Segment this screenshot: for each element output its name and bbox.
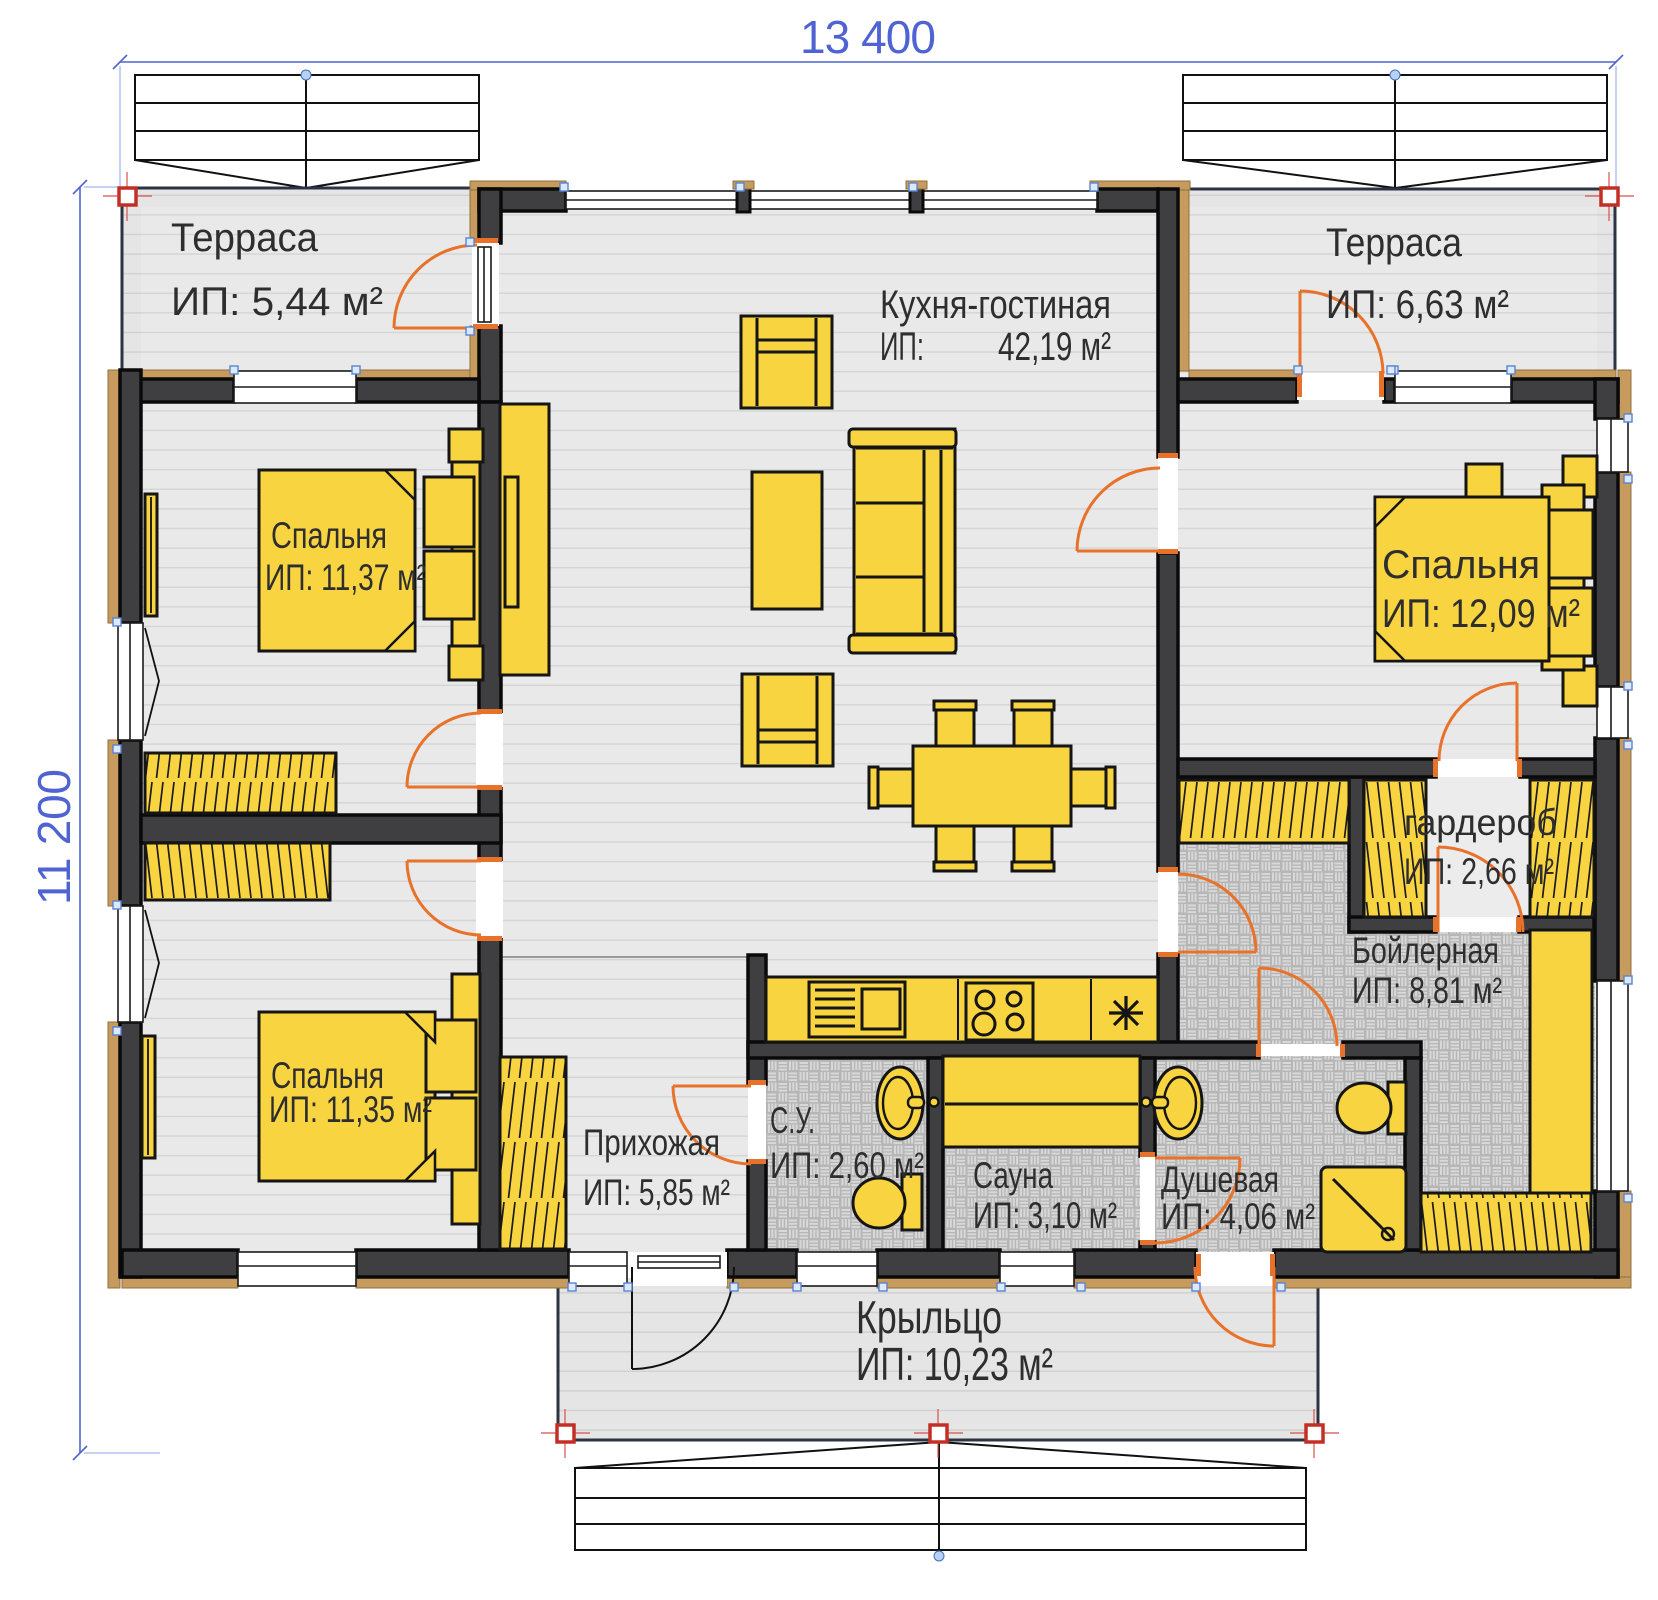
svg-text:ИП: 4,06 м²: ИП: 4,06 м² [1161, 1196, 1315, 1237]
svg-text:ИП: 5,85 м²: ИП: 5,85 м² [583, 1172, 730, 1213]
svg-text:Сауна: Сауна [973, 1155, 1053, 1196]
svg-text:Крыльцо: Крыльцо [856, 1291, 1002, 1343]
svg-text:ИП: 8,81 м²: ИП: 8,81 м² [1352, 970, 1502, 1011]
svg-text:Кухня-гостиная: Кухня-гостиная [880, 283, 1111, 327]
svg-text:ИП:: ИП: [880, 325, 924, 369]
svg-text:Бойлерная: Бойлерная [1352, 930, 1499, 971]
svg-text:С.У.: С.У. [770, 1100, 815, 1141]
svg-text:гардероб: гардероб [1404, 802, 1557, 843]
svg-text:Терраса: Терраса [171, 216, 319, 260]
svg-text:ИП: 10,23 м²: ИП: 10,23 м² [856, 1338, 1053, 1390]
svg-text:ИП: 2,66 м²: ИП: 2,66 м² [1404, 851, 1554, 892]
svg-text:Душевая: Душевая [1161, 1159, 1279, 1200]
svg-text:ИП: 6,63 м²: ИП: 6,63 м² [1326, 283, 1509, 327]
svg-text:11 200: 11 200 [28, 769, 80, 905]
svg-text:13 400: 13 400 [800, 11, 936, 63]
svg-text:Спальня: Спальня [271, 515, 387, 556]
svg-text:Прихожая: Прихожая [583, 1122, 720, 1163]
svg-text:Спальня: Спальня [1382, 543, 1540, 587]
svg-text:ИП: 2,60 м²: ИП: 2,60 м² [770, 1145, 924, 1186]
svg-text:ИП: 11,37 м²: ИП: 11,37 м² [265, 557, 426, 598]
svg-text:ИП: 5,44 м²: ИП: 5,44 м² [171, 280, 383, 324]
svg-text:ИП: 12,09 м²: ИП: 12,09 м² [1382, 592, 1580, 636]
svg-text:Терраса: Терраса [1326, 221, 1463, 265]
svg-text:42,19 м²: 42,19 м² [998, 325, 1111, 369]
svg-text:ИП: 3,10 м²: ИП: 3,10 м² [973, 1195, 1117, 1236]
svg-text:ИП: 11,35 м²: ИП: 11,35 м² [269, 1089, 432, 1130]
